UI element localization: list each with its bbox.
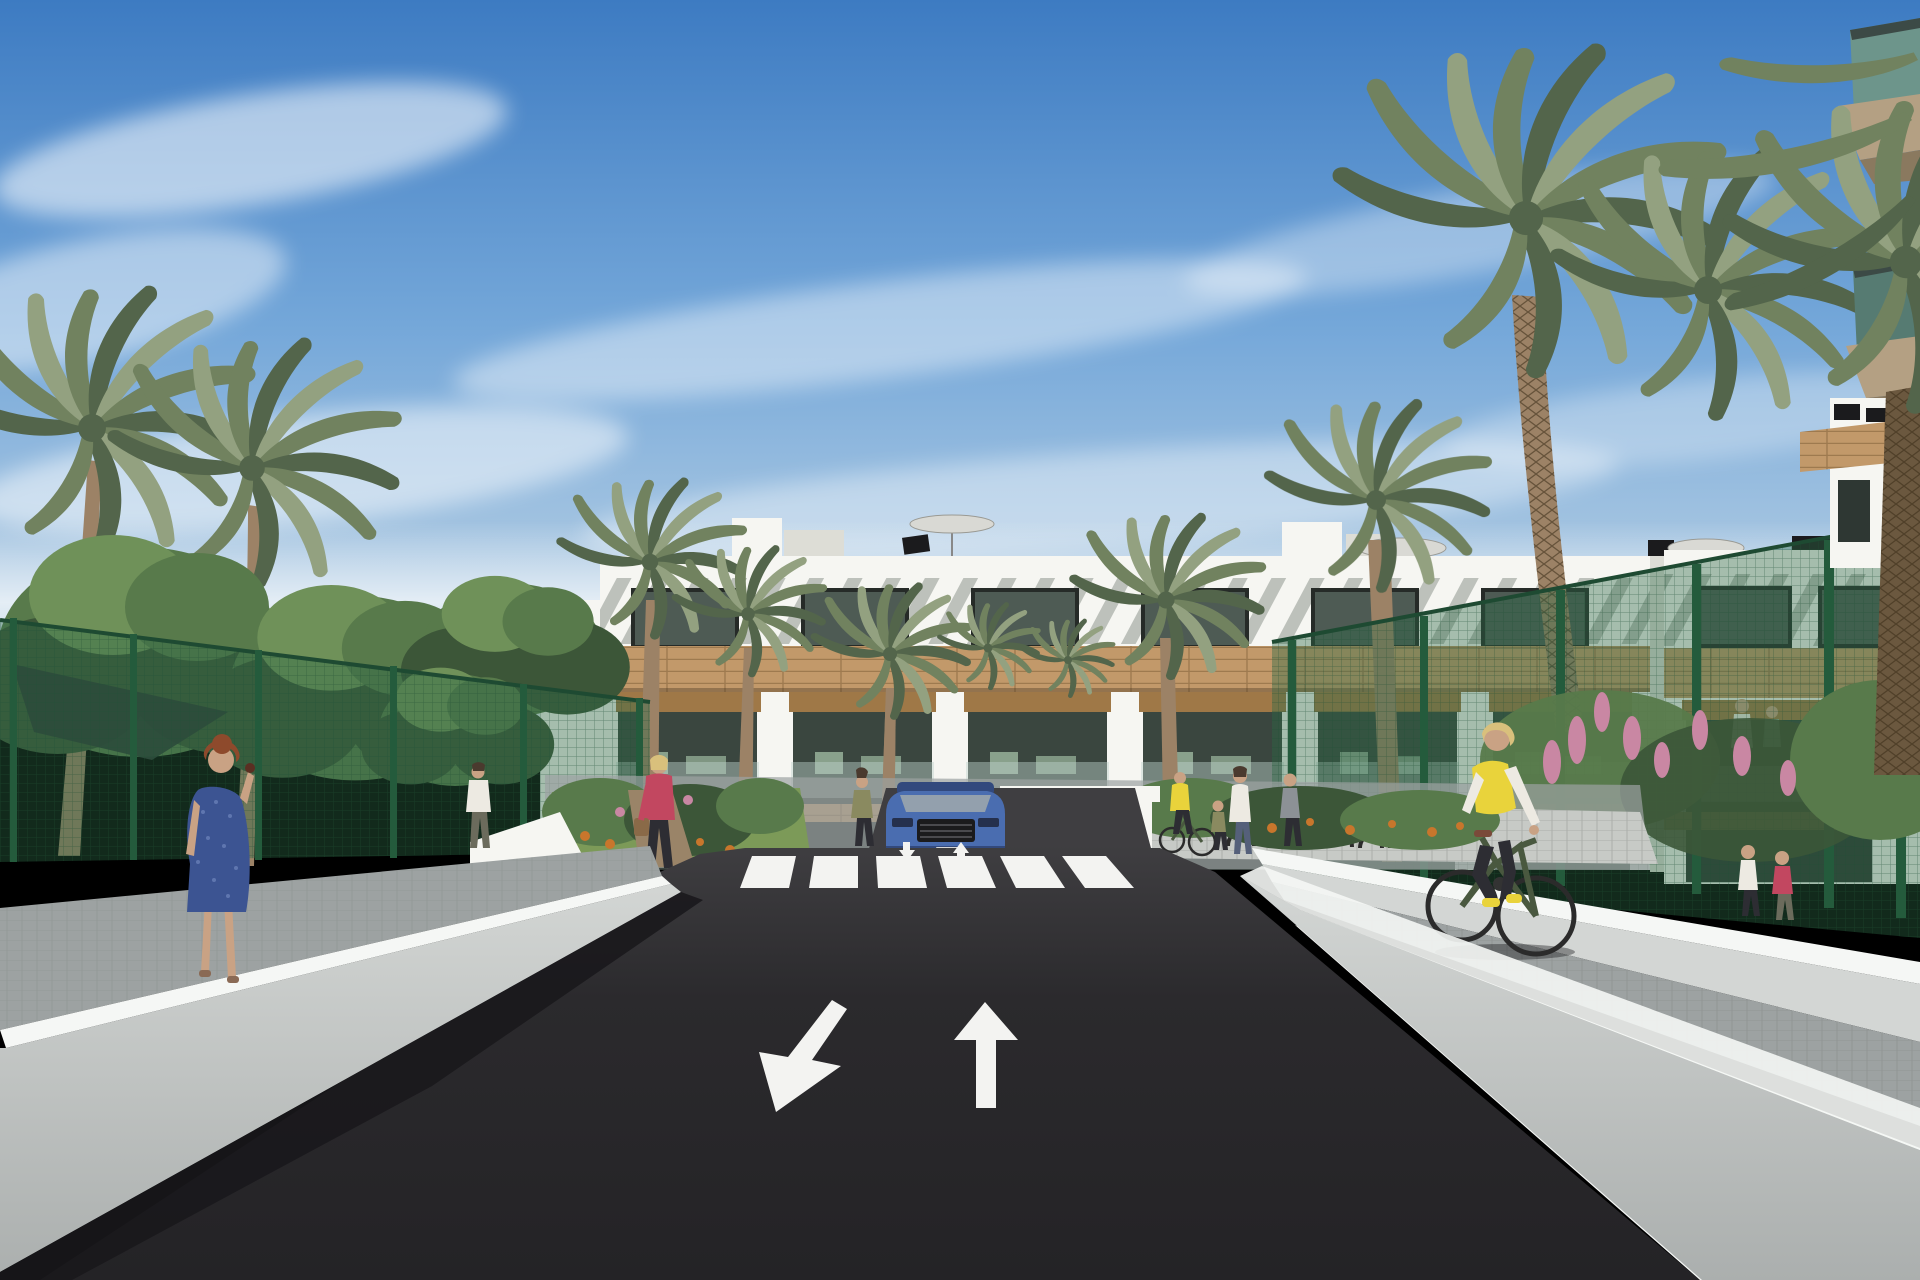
cyclist-shoe xyxy=(1482,898,1500,907)
facade-vent xyxy=(1866,408,1888,422)
phone xyxy=(245,763,255,773)
car-headlight xyxy=(892,818,913,827)
bike-saddle xyxy=(1474,830,1492,837)
car-headlight xyxy=(978,818,999,827)
car-windshield xyxy=(900,795,991,812)
architectural-rendering xyxy=(0,0,1920,1280)
render-canvas xyxy=(0,0,1920,1280)
cyclist-shoe xyxy=(1506,894,1522,903)
facade-vent xyxy=(1834,404,1860,420)
handbag xyxy=(634,818,649,836)
solar-panel xyxy=(902,534,930,554)
